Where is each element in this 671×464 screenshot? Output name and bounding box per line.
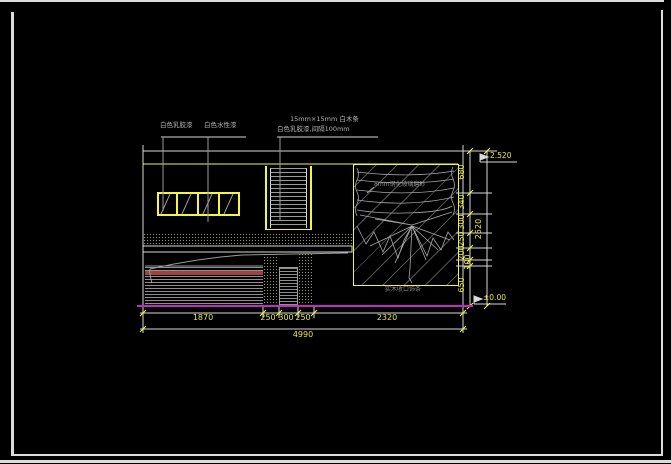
level-top-value: 2.520 (490, 152, 511, 160)
dim-bottom-total: 4990 (285, 331, 321, 339)
panel-note: 8mm钢化玻璃磨砂 (374, 182, 426, 188)
dim-right-650: 650 (458, 271, 466, 299)
finish-label-2: 白色水性漆 (204, 122, 237, 129)
bottom-level-marker-icon (474, 296, 482, 304)
curtain-swag-line (150, 253, 348, 269)
drape-right-edge (452, 167, 455, 215)
level-bottom-value: ±0.00 (483, 294, 506, 302)
dim-right-680: 680 (458, 158, 466, 186)
dim-bottom-250b: 250 (291, 314, 315, 322)
dim-bottom-1870: 1870 (185, 314, 221, 322)
panel-note-leader (367, 187, 374, 193)
dim-right-total: 2520 (475, 213, 483, 245)
drape-scallops (357, 226, 454, 258)
finish-label-1: 白色乳胶漆 (160, 122, 193, 129)
drape-spokes (370, 226, 450, 268)
drape-left-edge (356, 168, 359, 216)
curtain-cord (150, 269, 152, 283)
shelf-bar (143, 246, 352, 252)
panel-bottom-note: 实木收口饰条 (385, 287, 421, 293)
wood-strip-note-line1: 15mm×15mm 白木条 (290, 116, 359, 123)
drape-tail (409, 268, 412, 283)
linework-overlay (0, 0, 671, 464)
wood-strip-note-line2: 白色乳胶漆,间隔100mm (277, 126, 350, 133)
window-opening-marks (161, 194, 233, 214)
dim-bottom-2320: 2320 (369, 314, 405, 322)
cad-sheet: 白色乳胶漆 白色水性漆 15mm×15mm 白木条 白色乳胶漆,间隔100mm … (0, 0, 671, 464)
